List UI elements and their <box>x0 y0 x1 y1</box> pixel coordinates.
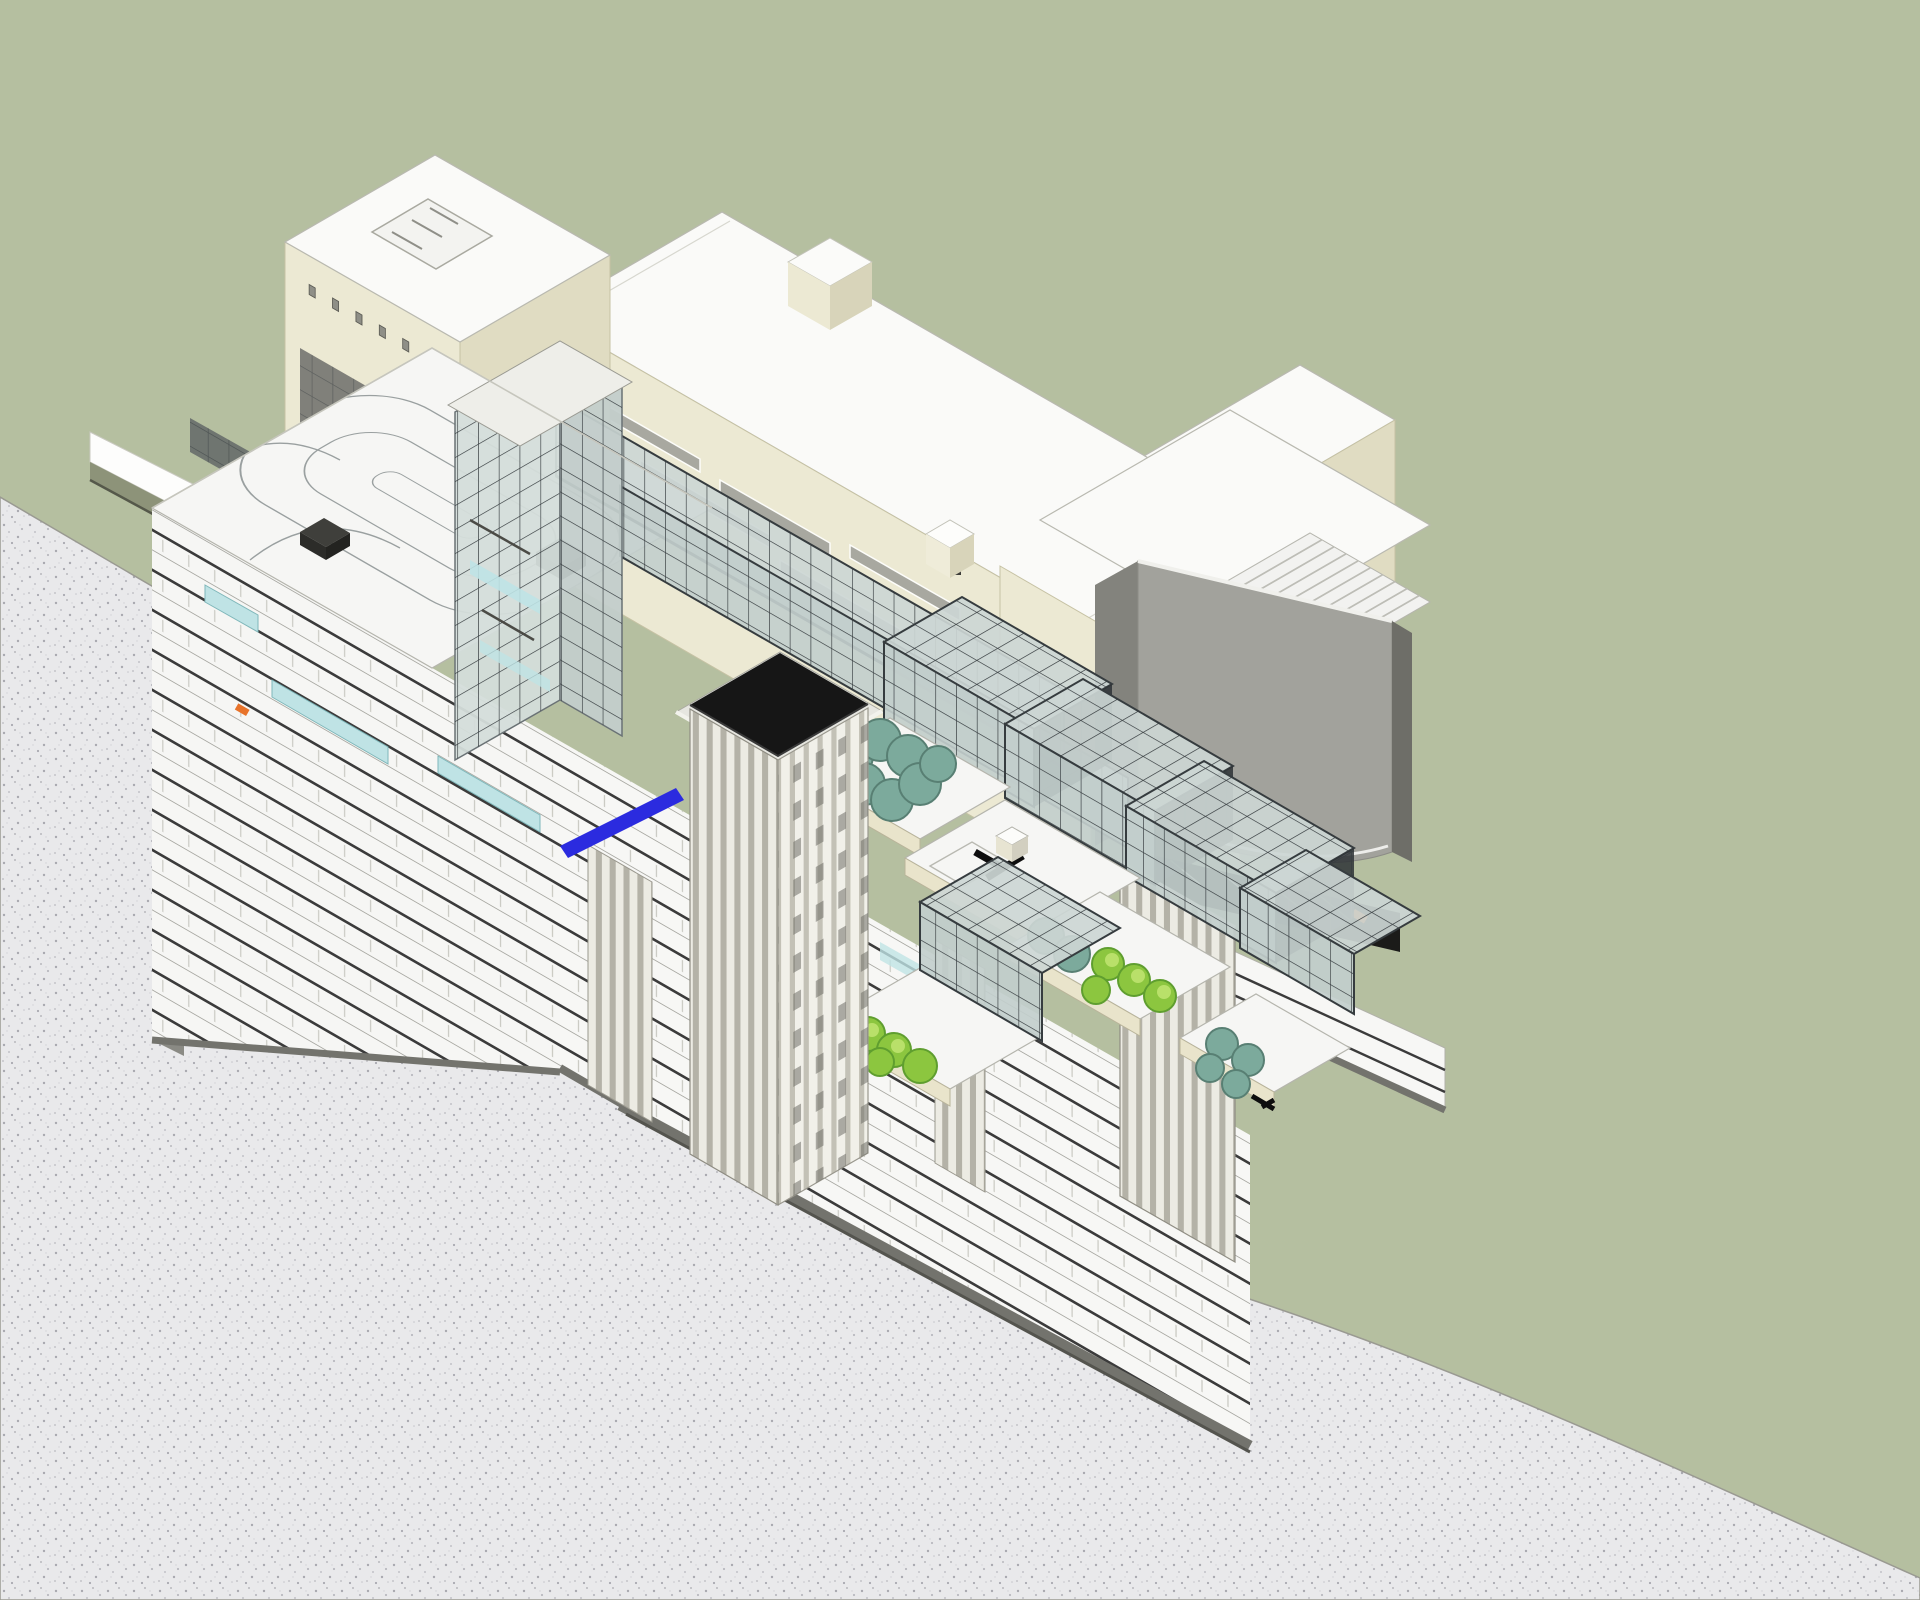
tower-side-windows <box>778 708 868 1205</box>
black-roof-tower <box>676 652 882 1205</box>
screenshot-canvas <box>0 0 1920 1600</box>
atrium-lattice-tower <box>448 341 632 760</box>
tower-front-pilasters <box>690 709 778 1205</box>
axonometric-rendering <box>0 0 1920 1600</box>
pilaster-band <box>588 845 652 1122</box>
